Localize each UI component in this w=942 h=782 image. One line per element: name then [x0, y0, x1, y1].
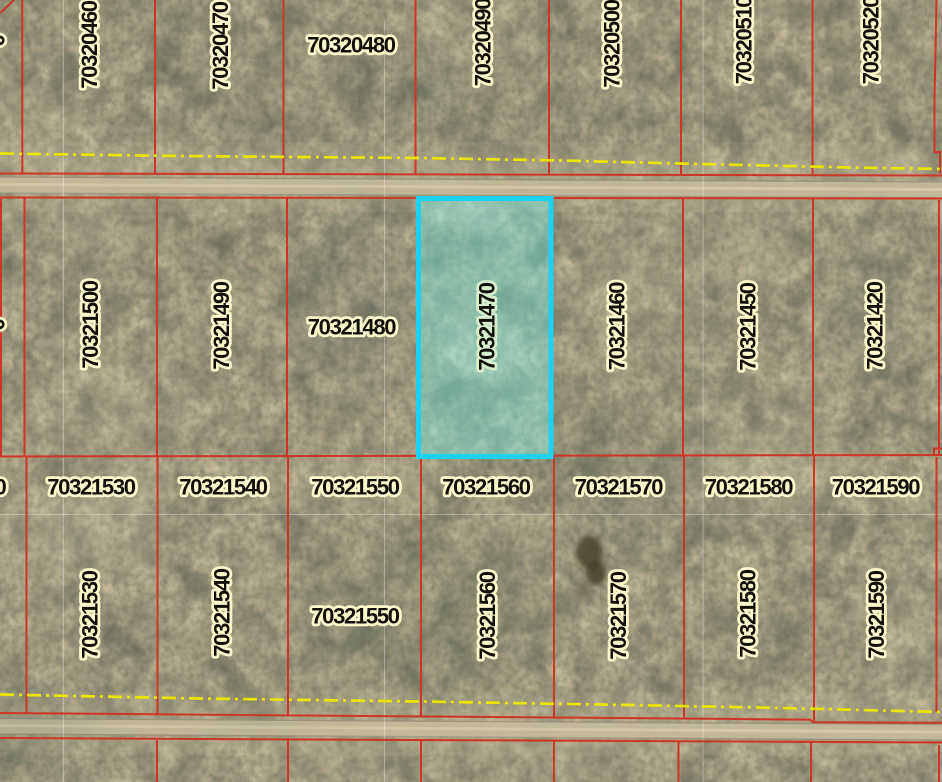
svg-text:70321550: 70321550: [311, 604, 400, 629]
svg-text:70320480: 70320480: [307, 33, 396, 58]
svg-text:70321560: 70321560: [475, 571, 500, 660]
svg-text:70321580: 70321580: [736, 569, 761, 658]
svg-text:70320500: 70320500: [600, 0, 625, 88]
svg-text:70321550: 70321550: [311, 475, 400, 500]
svg-text:70321560: 70321560: [442, 475, 531, 500]
svg-text:0: 0: [0, 318, 10, 330]
svg-text:70321580: 70321580: [705, 475, 794, 500]
svg-text:70321540: 70321540: [210, 568, 235, 657]
svg-text:70321590: 70321590: [832, 475, 921, 500]
svg-text:70320510: 70320510: [732, 0, 757, 84]
svg-text:70321530: 70321530: [47, 475, 136, 500]
svg-text:70321570: 70321570: [575, 475, 664, 500]
svg-text:70320470: 70320470: [208, 1, 233, 90]
svg-text:70321500: 70321500: [78, 280, 103, 369]
svg-text:70320490: 70320490: [471, 0, 496, 86]
svg-text:70321420: 70321420: [863, 281, 888, 370]
svg-text:70321450: 70321450: [736, 282, 761, 371]
svg-text:70321460: 70321460: [605, 282, 630, 371]
svg-text:70320520: 70320520: [859, 0, 884, 84]
svg-text:70321570: 70321570: [606, 571, 631, 660]
svg-text:70321540: 70321540: [179, 475, 268, 500]
svg-text:70321530: 70321530: [78, 570, 103, 659]
svg-text:70321490: 70321490: [209, 281, 234, 370]
svg-text:70321480: 70321480: [308, 315, 397, 340]
svg-text:0: 0: [0, 34, 10, 46]
svg-text:70321470: 70321470: [475, 282, 500, 371]
svg-text:70320460: 70320460: [77, 0, 102, 89]
svg-text:70321590: 70321590: [864, 570, 889, 659]
